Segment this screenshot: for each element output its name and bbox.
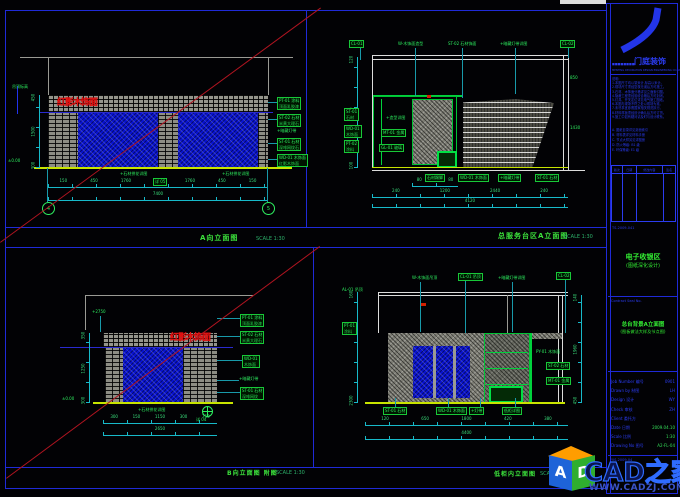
- titleblock-field-row: Check 审核ZH: [611, 405, 675, 414]
- annotation-box-b: PT-02涂料: [344, 140, 359, 153]
- annotation-ldr-a: [268, 159, 277, 160]
- annotation-callout-c: [202, 406, 213, 417]
- annotation-box-d: MT-01 金属: [546, 377, 571, 385]
- annotation-box-d: +灯带: [469, 407, 484, 415]
- annotation-ldr-d: [515, 398, 516, 407]
- drawing-title-line1: 总台背景A立面图: [610, 320, 676, 328]
- annotation-box-d: 低柜详图: [502, 407, 522, 415]
- annotation-box-d: ST-02 石材: [546, 362, 570, 370]
- view-d-title: 低柜内立面图: [494, 469, 536, 478]
- annotation-box-b: 石材踢脚: [425, 174, 445, 182]
- annotation-ldr-a: [268, 143, 277, 144]
- annotation-box-b: +暗藏灯带: [498, 174, 521, 182]
- annotation-hdim-b: 4120: [372, 204, 568, 208]
- annotation-box-d: PT-01涂料: [342, 322, 357, 335]
- annotation-box-c: ST-01 石材深啡网纹: [240, 387, 264, 400]
- annotation-box-a: 详 05: [153, 178, 167, 186]
- titleblock-field-row: Scale 比例1:30: [611, 432, 675, 441]
- annotation-ldr-a: [268, 102, 277, 103]
- annotation-box-d: CL-01 吊顶: [458, 273, 483, 281]
- annotation-txt-c: 详 04: [196, 417, 206, 422]
- annotation-vdim-d: 1401960450: [578, 295, 582, 403]
- drawing-title-line2: (图板做法大样及节点图): [610, 329, 676, 335]
- annotation-box-b: CL-02: [560, 40, 575, 48]
- view-c-title: B向立面图 附图: [227, 468, 278, 477]
- annotation-vdim-c: 3501250300: [86, 333, 90, 403]
- annotation-hdim-d: 1206501800420380: [365, 422, 568, 426]
- annotation-box-d: WD-01 木饰面: [436, 407, 467, 415]
- rev-col-3: 修改内容: [637, 166, 664, 173]
- view-b-scale: SCALE 1:30: [564, 234, 593, 240]
- annotation-ldr-c: [217, 360, 242, 361]
- company-logo-sub: MENTING DECORATION DESIGN ENGINEERING CO…: [612, 69, 680, 72]
- rev-col-4: 签名: [663, 166, 675, 173]
- company-stamp-row: ■■■■■■■■: [612, 62, 635, 66]
- annotation-ldr-a: [268, 119, 277, 120]
- annotation-box-b: CL-01: [349, 40, 364, 48]
- annotation-vdim-a: 4501500300: [36, 95, 40, 168]
- annotation-ldr-c: [217, 336, 240, 337]
- annotation-ldr-c: [217, 380, 239, 381]
- annotation-hdim-c: 2650: [103, 432, 217, 436]
- annotation-txt-a: +暗藏灯带: [277, 128, 296, 133]
- annotation-txt-c: ±0.00: [62, 396, 74, 401]
- titleblock-field-row: Client 委托方: [611, 414, 675, 423]
- annotation-ldr-b: [568, 48, 569, 58]
- annotation-ldr-d: [421, 303, 426, 306]
- company-logo-name: 门庭装饰: [634, 56, 666, 67]
- annotation-ldr-d: [480, 398, 481, 407]
- titleblock-field-row: Date 日期2009.04.10: [611, 423, 675, 432]
- annotation-layer: 红影木饰面PT-01 涂料顶面乳胶漆ST-02 石材米黄大理石+暗藏灯带ST-0…: [0, 0, 680, 497]
- rev-col-1: 版次: [612, 166, 623, 173]
- annotation-txt-a: ±0.00: [8, 158, 20, 163]
- annotation-hdim-a: 7400: [48, 197, 268, 201]
- annotation-ldr-d: [512, 282, 513, 332]
- annotation-ldr-a: [47, 168, 48, 202]
- annotation-ldr-d: [420, 282, 421, 332]
- annotation-box-b: ST-01石材: [344, 108, 359, 121]
- annotation-box-a: WD-01 木饰面红影木饰面: [277, 154, 308, 167]
- annotation-txt-b: 850: [570, 75, 578, 80]
- annotation-axis-a: 5: [262, 202, 275, 215]
- annotation-box-b: GL-01 玻璃: [379, 144, 404, 152]
- annotation-txt-d: +暗藏灯带详图: [498, 275, 525, 280]
- titleblock-rule-2: [608, 296, 677, 297]
- annotation-box-b: MT-01 金属: [381, 129, 406, 137]
- revision-table: 版次 日期 修改内容 签名: [611, 165, 676, 222]
- annotation-ldr-b: [360, 48, 361, 60]
- annotation-ldr-b: [415, 48, 416, 96]
- view-a-title: A向立面图: [200, 233, 238, 243]
- annotation-txt-c: +石材拼花详图: [138, 407, 165, 412]
- annotation-box-d: ST-01 石材: [383, 407, 407, 415]
- annotation-ldr-a: [17, 86, 18, 114]
- titleblock-text-line: E. 环保等级: E1 级: [612, 148, 676, 153]
- annotation-ldr-c: [100, 316, 101, 332]
- annotation-txt-a: 吊顶标高: [12, 84, 28, 89]
- annotation-txt-b: +造型详图: [386, 115, 405, 120]
- titleblock-rule-3: [608, 371, 677, 372]
- annotation-box-b: WD-01木饰面: [344, 125, 362, 138]
- annotation-box-d: CL-02: [556, 272, 571, 280]
- cadzj-watermark: A D CAD之家 WWW.CADZJ.COM: [534, 444, 680, 497]
- annotation-txt-d: PY-01 木饰面: [536, 349, 560, 354]
- annotation-box-a: PT-01 涂料顶面乳胶漆: [277, 97, 301, 110]
- annotation-box-b: WD-01 木饰面: [458, 174, 489, 182]
- annotation-box-a: ST-01 石材深啡网纹石: [277, 138, 301, 151]
- annotation-ldr-b: [427, 95, 431, 98]
- view-c-scale: SCALE 1:30: [276, 470, 305, 476]
- annotation-txt-d: W-木饰面吊顶: [412, 275, 437, 280]
- annotation-ldr-b: [462, 48, 463, 98]
- annotation-vdim-d: 1602300: [354, 292, 358, 403]
- annotation-txt-a: +石材拼花详图: [120, 171, 147, 176]
- view-a-scale: SCALE 1:30: [256, 236, 285, 242]
- annotation-box-c: WD-01木饰面: [242, 355, 260, 368]
- rev-col-2: 日期: [623, 166, 637, 173]
- company-logo-swoosh: [614, 4, 670, 54]
- annotation-txt-c: +2750: [92, 309, 106, 314]
- annotation-ldr-d: [565, 280, 566, 333]
- titleblock-field-row: Design 设计WY: [611, 395, 675, 404]
- annotation-box-c: PT-01 涂料顶面乳胶漆: [240, 314, 264, 327]
- titleblock-rule-1: [611, 74, 676, 75]
- annotation-box-a: ST-02 石材米黄大理石: [277, 114, 301, 127]
- annotation-txt-d: AL-01 吊顶: [342, 287, 363, 292]
- project-title-line2: (图纸深化设计): [610, 262, 676, 269]
- annotation-ldr-d: [465, 281, 466, 333]
- project-title-line1: 电子收银区: [610, 252, 676, 262]
- annotation-ldr-a: [267, 168, 268, 202]
- annotation-red-a: 红影木饰面: [57, 98, 97, 108]
- annotation-ldr-d: [395, 398, 396, 407]
- titleblock-fields: Job Number 编号0901Drawn by 制图LHDesign 设计W…: [611, 377, 675, 451]
- cad-sheet-canvas: 红影木饰面PT-01 涂料顶面乳胶漆ST-02 石材米黄大理石+暗藏灯带ST-0…: [0, 0, 680, 497]
- annotation-box-b: ST-01 石材: [535, 174, 559, 182]
- annotation-hdim-b: 8045080: [412, 183, 458, 187]
- watermark-url-text: WWW.CADZJ.COM: [589, 483, 680, 493]
- annotation-txt-b: 1430: [570, 125, 580, 130]
- annotation-ldr-d: [448, 398, 449, 407]
- seal-label: Contract Seal No.: [611, 299, 642, 303]
- titleblock-misc-no: TS-2009-041: [612, 226, 634, 230]
- titleblock-notes: 说明:1.本图尺寸均以毫米计,标高以米计。2.现场尺寸须经复核无误后方可施工。3…: [612, 77, 676, 119]
- annotation-txt-c: +暗藏灯带: [239, 376, 258, 381]
- annotation-box-c: ST-02 石材米黄大理石: [240, 331, 264, 344]
- view-b-title: 总服务台区A立面图: [498, 231, 568, 241]
- annotation-ldr-b: [515, 48, 516, 94]
- watermark-cube-front: A: [549, 455, 572, 491]
- titleblock-list: A. 图纸目录详见封面索引B. 材料表详见材料手册C. 节点大样另见详图册D. …: [612, 128, 676, 153]
- annotation-hdim-d: 4400: [365, 436, 568, 440]
- titleblock-field-row: Drawn by 制图LH: [611, 386, 675, 395]
- annotation-txt-a: +石材拼花详图: [222, 171, 249, 176]
- annotation-txt-b: W-木饰面造型: [398, 41, 423, 46]
- annotation-txt-b: ST-02 石材饰面: [448, 41, 476, 46]
- titleblock-field-row: Job Number 编号0901: [611, 377, 675, 386]
- annotation-ldr-c: [217, 392, 240, 393]
- annotation-txt-b: +暗藏灯带详图: [500, 41, 527, 46]
- titleblock-text-line: 9.施工中如有疑问请及时与设计联系。: [612, 115, 676, 119]
